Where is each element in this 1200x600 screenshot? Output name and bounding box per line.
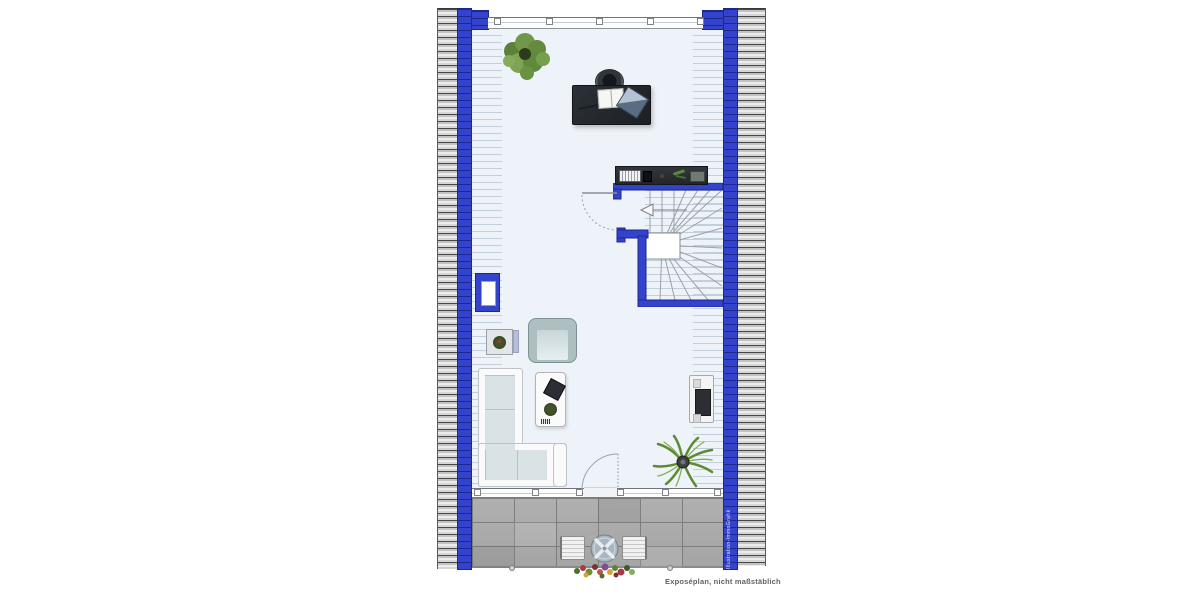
sideboard-bowl [660, 174, 664, 178]
side-table [486, 329, 513, 355]
sideboard [615, 166, 708, 185]
wall-top-left [471, 10, 489, 30]
sofa [478, 368, 568, 488]
potted-plant [493, 336, 506, 349]
roof-hatch-right [738, 8, 766, 566]
window-mullion [596, 18, 603, 25]
flower-bed [571, 559, 639, 583]
window-mullion [546, 18, 553, 25]
window-mullion [662, 489, 669, 496]
terrace-chair-left [560, 536, 585, 560]
armchair [528, 318, 577, 363]
wall-left [457, 8, 472, 570]
tv-board [689, 375, 714, 423]
terrace-chair-right [622, 536, 647, 560]
window-mullion [494, 18, 501, 25]
sideboard-frame [643, 171, 652, 182]
staircase [613, 183, 723, 307]
roof-hatch-left [437, 8, 458, 569]
floor-plan: Illustration-ImmoGrafik Exposéplan, nich… [0, 0, 1200, 600]
floor-lamp [513, 330, 519, 353]
window-mullion [697, 18, 704, 25]
window-mullion [532, 489, 539, 496]
window-mullion [714, 489, 721, 496]
interior-door-swing [578, 190, 622, 234]
wall-top-right [702, 10, 724, 30]
window-mullion [647, 18, 654, 25]
sideboard-sprig [676, 175, 686, 179]
tree-plant [499, 31, 553, 85]
window-mullion [474, 489, 481, 496]
sideboard-tray [690, 171, 705, 182]
skylight-window [475, 273, 500, 312]
wall-right [723, 8, 738, 570]
terrace-door-swing [580, 452, 622, 494]
footer-note: Exposéplan, nicht maßstäblich [665, 577, 781, 586]
terrace-post [509, 565, 515, 571]
stair-landing [645, 233, 680, 259]
sofa-armrest [553, 443, 567, 487]
tv [695, 389, 711, 416]
sideboard-radio [619, 170, 641, 182]
palm-plant [650, 434, 716, 488]
sofa-cushions [485, 450, 547, 480]
terrace-post [667, 565, 673, 571]
watermark-text: Illustration-ImmoGrafik [726, 502, 739, 576]
stair-direction-arrow [641, 204, 687, 216]
